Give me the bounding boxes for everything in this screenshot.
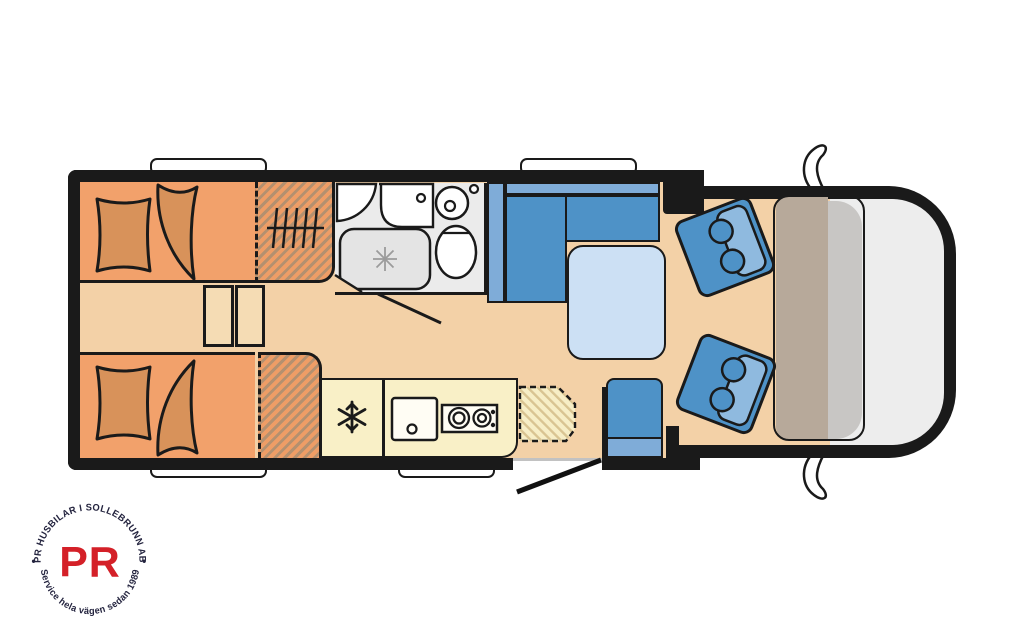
logo-separator-right: •	[142, 555, 146, 569]
step-1	[203, 285, 234, 347]
fridge-divider	[382, 380, 385, 456]
wing-mirror-bottom	[804, 454, 826, 499]
wardrobe-bottom	[258, 352, 322, 458]
dinette-wall-backrest	[505, 182, 660, 195]
dinette-cushion-right	[567, 195, 660, 242]
dealer-logo: PR HUSBILAR I SOLLEBRUNN AB Service hela…	[26, 497, 154, 625]
bed-bottom	[80, 352, 255, 458]
bathroom	[335, 183, 487, 295]
kitchen-counter	[322, 378, 518, 458]
dinette-table	[567, 245, 666, 360]
dinette-side-backrest	[487, 182, 505, 303]
wardrobe-top	[255, 182, 335, 283]
windshield-outline	[773, 195, 865, 441]
step-2	[235, 285, 265, 347]
floorplan-canvas: PR HUSBILAR I SOLLEBRUNN AB Service hela…	[0, 0, 1024, 640]
wall-stub-bottom	[666, 426, 679, 470]
travel-seat-base	[608, 437, 661, 456]
wall-stub-top	[663, 170, 704, 214]
bed-top	[80, 182, 255, 283]
travel-seat	[606, 378, 663, 458]
dinette-cushion-left	[505, 195, 567, 303]
entry-door-opening	[513, 458, 602, 470]
logo-separator-left: •	[31, 555, 35, 569]
logo-monogram: PR	[59, 539, 121, 587]
wing-mirror-top	[804, 145, 826, 190]
